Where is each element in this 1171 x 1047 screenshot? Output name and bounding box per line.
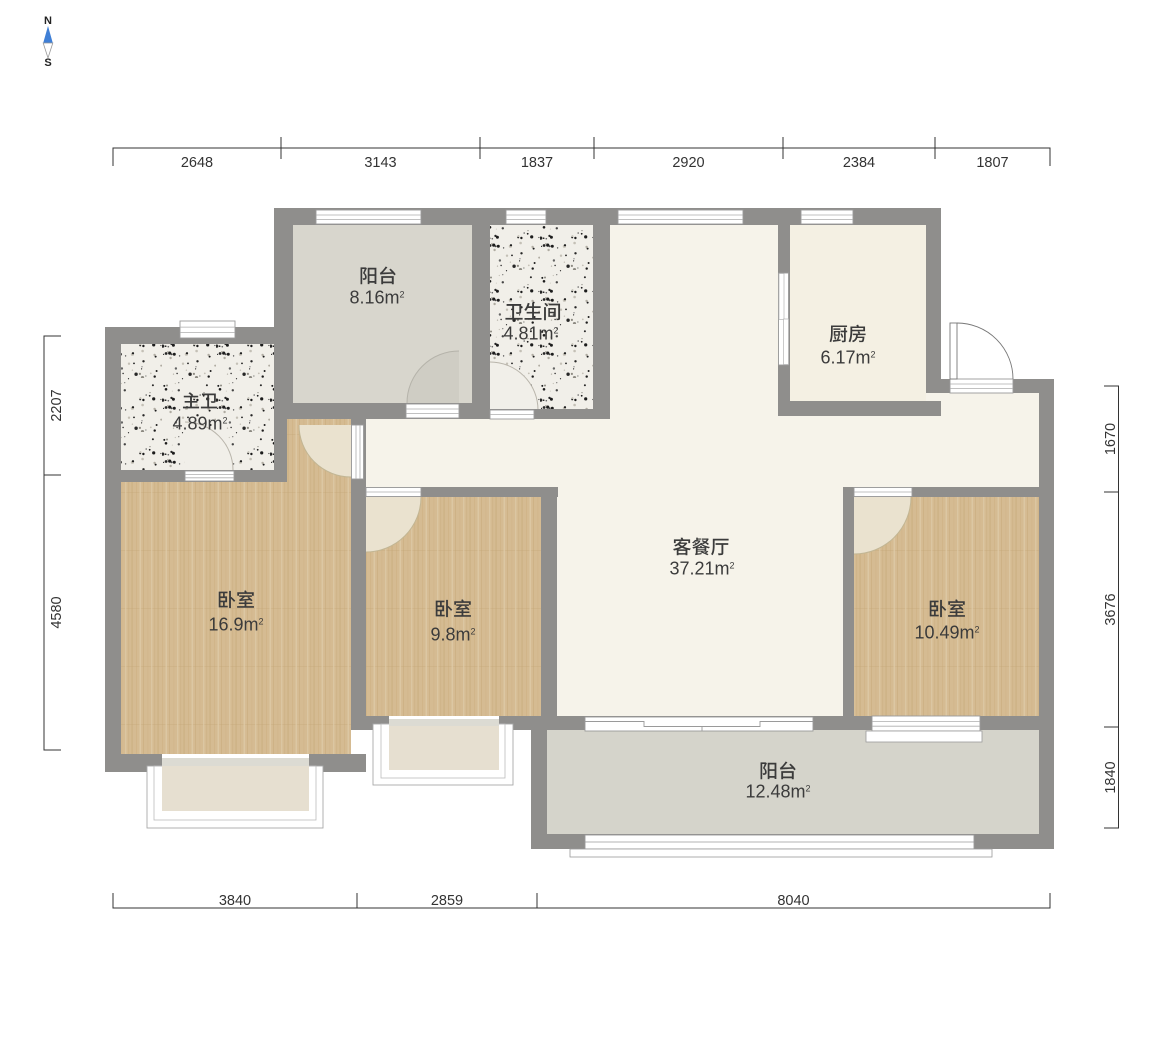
- svg-text:4.81m2: 4.81m2: [503, 324, 558, 344]
- svg-text:1670: 1670: [1103, 423, 1119, 455]
- svg-text:2648: 2648: [181, 155, 213, 171]
- svg-text:4580: 4580: [49, 596, 65, 628]
- svg-text:8.16m2: 8.16m2: [349, 288, 404, 308]
- svg-text:S: S: [44, 57, 51, 69]
- svg-text:12.48m2: 12.48m2: [745, 782, 810, 802]
- svg-text:2920: 2920: [672, 155, 704, 171]
- svg-text:4.89m2: 4.89m2: [172, 414, 227, 434]
- svg-text:8040: 8040: [777, 893, 809, 909]
- svg-text:3840: 3840: [219, 893, 251, 909]
- svg-text:1807: 1807: [976, 155, 1008, 171]
- svg-text:2859: 2859: [431, 893, 463, 909]
- svg-text:2384: 2384: [843, 155, 875, 171]
- svg-text:3676: 3676: [1103, 593, 1119, 625]
- svg-text:3143: 3143: [364, 155, 396, 171]
- svg-text:6.17m2: 6.17m2: [820, 348, 875, 368]
- svg-text:1840: 1840: [1103, 761, 1119, 793]
- svg-text:37.21m2: 37.21m2: [669, 559, 734, 579]
- svg-text:2207: 2207: [49, 389, 65, 421]
- svg-text:9.8m2: 9.8m2: [430, 625, 475, 645]
- svg-text:N: N: [44, 15, 52, 27]
- svg-text:10.49m2: 10.49m2: [914, 623, 979, 643]
- svg-text:16.9m2: 16.9m2: [208, 615, 263, 635]
- svg-text:1837: 1837: [521, 155, 553, 171]
